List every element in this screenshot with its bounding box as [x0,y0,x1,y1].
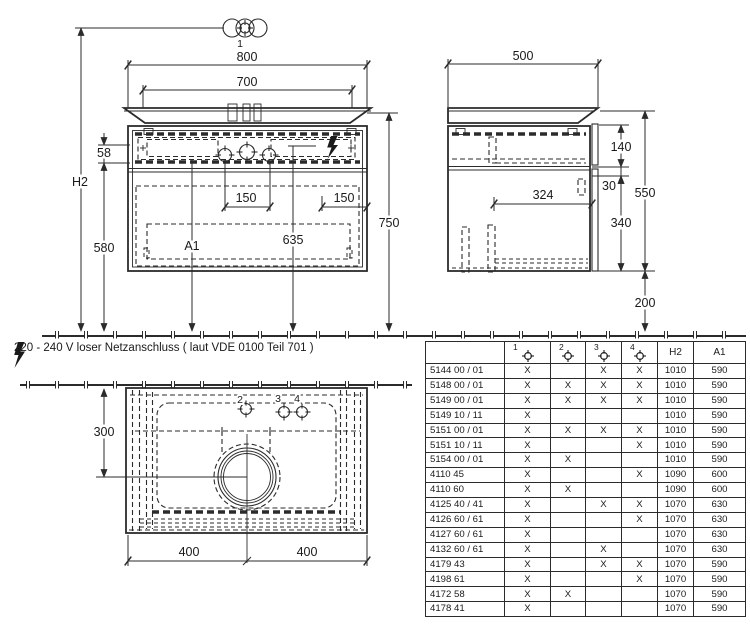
dim-150-right-label: 150 [334,191,355,205]
h2-cell: 1070 [658,498,694,513]
table-header-row: 1 2 [426,342,746,364]
hole3-cell [586,438,622,453]
drill-hole-icon [597,349,611,363]
dim-635: 635 [283,146,304,331]
hole2-cell [551,572,586,587]
front-view: 1 800 700 [72,19,399,331]
hole4-cell [622,542,658,557]
hole1-cell: X [505,587,551,602]
hole3-cell [586,512,622,527]
hole1-cell: X [505,364,551,379]
dim-150-left: 150 [225,163,270,211]
a1-cell: 630 [694,512,746,527]
a1-cell: 590 [694,453,746,468]
hole4-column-header: 4 [622,342,658,364]
hole4-cell: X [622,438,658,453]
a1-cell: 600 [694,483,746,498]
hole4-cell: X [622,378,658,393]
hole1-cell: X [505,512,551,527]
table-row: 5151 10 / 11XX1010590 [426,438,746,453]
article-column-header [426,342,505,364]
table-row: 4179 43XXX1070590 [426,557,746,572]
hole1-cell: X [505,378,551,393]
dim-500: 500 [448,49,598,107]
article-cell: 5149 00 / 01 [426,393,505,408]
article-cell: 4125 40 / 41 [426,498,505,513]
hole4-cell [622,453,658,468]
technical-drawing-page: 1 800 700 [0,0,750,637]
hole4-cell [622,587,658,602]
dim-400-right-label: 400 [297,545,318,559]
dim-324: 324 [494,188,592,211]
a1-cell: 590 [694,572,746,587]
h2-cell: 1070 [658,557,694,572]
hole4-cell: X [622,572,658,587]
hole1-cell: X [505,572,551,587]
dim-300: 300 [94,389,115,477]
dim-300-label: 300 [94,425,115,439]
hole4-cell: X [622,468,658,483]
a1-cell: 600 [694,468,746,483]
article-cell: 5151 00 / 01 [426,423,505,438]
plan-view: 2 3 4 300 400 400 [94,388,367,566]
dim-324-label: 324 [533,188,554,202]
a1-cell: 630 [694,542,746,557]
spec-table: 1 2 [425,341,746,617]
cabinet-side [448,124,598,272]
table-row: 4132 60 / 61XX1070630 [426,542,746,557]
hole4-cell [622,602,658,617]
article-cell: 4198 61 [426,572,505,587]
hole3-cell [586,602,622,617]
h2-cell: 1090 [658,483,694,498]
hole2-cell [551,542,586,557]
hole2-cell: X [551,423,586,438]
drill-hole-icon [561,349,575,363]
hole1-cell: X [505,542,551,557]
hole2-cell [551,557,586,572]
h2-cell: 1010 [658,364,694,379]
washbasin-side [448,108,598,123]
hole4-cell [622,408,658,423]
hole1-cell: X [505,423,551,438]
drill-hole-icon [633,349,647,363]
dim-200-label: 200 [635,296,656,310]
hole2-cell [551,364,586,379]
hole1-cell: X [505,453,551,468]
dim-750-label: 750 [379,216,400,230]
dim-340-label: 340 [611,216,632,230]
power-supply-note: 220 - 240 V loser Netzanschluss ( laut V… [14,342,314,354]
h2-cell: 1010 [658,393,694,408]
hole1-column-header: 1 [505,342,551,364]
a1-column-header: A1 [694,342,746,364]
table-row: 4110 60XX1090600 [426,483,746,498]
hole1-header-number: 1 [513,342,518,352]
hole2-cell: X [551,378,586,393]
dim-58: 58 [97,133,130,163]
hole4-cell [622,527,658,542]
tap-hole-symbol [75,19,267,37]
hole3-cell: X [586,423,622,438]
hole1-cell: X [505,393,551,408]
h2-cell: 1070 [658,527,694,542]
table-row: 5154 00 / 01XX1010590 [426,453,746,468]
dim-H2: H2 [72,28,88,331]
h2-cell: 1070 [658,542,694,557]
h2-cell: 1070 [658,572,694,587]
dim-A1-label: A1 [184,239,199,253]
table-row: 4110 45XX1090600 [426,468,746,483]
hole1-cell: X [505,498,551,513]
table-row: 4126 60 / 61XX1070630 [426,512,746,527]
hole3-cell: X [586,364,622,379]
hole4-cell: X [622,498,658,513]
a1-cell: 590 [694,408,746,423]
hole2-cell [551,498,586,513]
hole4-cell: X [622,557,658,572]
hole2-cell [551,512,586,527]
drill-holes-plan: 2 3 4 [237,393,310,421]
h2-cell: 1070 [658,587,694,602]
hole2-cell: X [551,587,586,602]
h2-cell: 1070 [658,602,694,617]
dim-580: 580 [94,163,115,331]
hole1-label: 1 [237,38,243,50]
a1-cell: 590 [694,393,746,408]
dim-150-left-label: 150 [236,191,257,205]
dim-400: 400 400 [128,535,367,566]
table-row: 4125 40 / 41XXX1070630 [426,498,746,513]
table-row: 5144 00 / 01XXX1010590 [426,364,746,379]
a1-cell: 590 [694,557,746,572]
hole2-cell: X [551,393,586,408]
hole1-cell: X [505,468,551,483]
spec-table-container: 1 2 [425,341,745,617]
article-cell: 4126 60 / 61 [426,512,505,527]
table-row: 5149 00 / 01XXXX1010590 [426,393,746,408]
hole4-crosshair [294,404,311,421]
a1-cell: 590 [694,602,746,617]
article-cell: 5154 00 / 01 [426,453,505,468]
hole4-cell: X [622,393,658,408]
hole3-column-header: 3 [586,342,622,364]
article-cell: 5149 10 / 11 [426,408,505,423]
hole4-cell: X [622,364,658,379]
a1-cell: 630 [694,527,746,542]
dim-700: 700 [143,75,352,108]
article-cell: 4132 60 / 61 [426,542,505,557]
a1-cell: 590 [694,438,746,453]
hole4-label: 4 [294,393,300,405]
hole4-cell: X [622,423,658,438]
h2-column-header: H2 [658,342,694,364]
h2-cell: 1010 [658,378,694,393]
hole3-cell [586,527,622,542]
hole3-crosshair [276,404,293,421]
hole1-cell: X [505,483,551,498]
h2-cell: 1010 [658,423,694,438]
hole2-cell [551,602,586,617]
article-cell: 5148 00 / 01 [426,378,505,393]
article-cell: 4178 41 [426,602,505,617]
hole3-cell [586,453,622,468]
hole3-cell: X [586,393,622,408]
lightning-bolt-icon [14,342,26,369]
hole2-column-header: 2 [551,342,586,364]
article-cell: 4110 45 [426,468,505,483]
table-row: 4178 41X1070590 [426,602,746,617]
dim-140-label: 140 [611,140,632,154]
hole3-cell: X [586,557,622,572]
dim-58-label: 58 [97,146,111,160]
h2-cell: 1010 [658,438,694,453]
dim-635-label: 635 [283,233,304,247]
dim-700-label: 700 [237,75,258,89]
dim-150-right: 150 [322,191,367,211]
table-row: 5151 00 / 01XXXX1010590 [426,423,746,438]
dim-800-label: 800 [237,50,258,64]
dim-500-label: 500 [513,49,534,63]
power-supply-note-text: 220 - 240 V loser Netzanschluss ( laut V… [14,342,314,354]
drain-hole [96,434,280,563]
drill-holes-front [216,136,339,165]
a1-cell: 630 [694,498,746,513]
article-cell: 4110 60 [426,483,505,498]
h2-cell: 1010 [658,408,694,423]
dim-H2-label: H2 [72,175,88,189]
table-row: 5148 00 / 01XXXX1010590 [426,378,746,393]
hole4-cell: X [622,512,658,527]
side-view: 500 [448,49,655,331]
dim-750: 750 [367,113,399,331]
floor-tile-strip [42,331,746,339]
drill-hole-icon [521,349,535,363]
article-cell: 4172 58 [426,587,505,602]
dim-400-left-label: 400 [179,545,200,559]
hole2-cell: X [551,483,586,498]
h2-cell: 1010 [658,453,694,468]
article-cell: 4127 60 / 61 [426,527,505,542]
hole3-cell [586,587,622,602]
h2-cell: 1090 [658,468,694,483]
dim-200: 200 [635,271,656,331]
table-row: 5149 10 / 11X1010590 [426,408,746,423]
hole1-cell: X [505,527,551,542]
hole1-cell: X [505,408,551,423]
table-row: 4198 61XX1070590 [426,572,746,587]
hole4-cell [622,483,658,498]
hole2-cell: X [551,453,586,468]
hole2-cell [551,527,586,542]
hole3-cell [586,408,622,423]
dim-580-label: 580 [94,241,115,255]
a1-cell: 590 [694,378,746,393]
hole1-cell: X [505,602,551,617]
dim-550-label: 550 [635,186,656,200]
hole3-cell: X [586,498,622,513]
hole2-cell [551,408,586,423]
a1-cell: 590 [694,423,746,438]
hole3-cell [586,483,622,498]
hole1-cell: X [505,438,551,453]
hole3-cell [586,468,622,483]
article-cell: 5151 10 / 11 [426,438,505,453]
hole3-cell: X [586,378,622,393]
hole2-cell [551,468,586,483]
article-cell: 5144 00 / 01 [426,364,505,379]
h2-cell: 1070 [658,512,694,527]
hole1-cell: X [505,557,551,572]
hole3-cell [586,572,622,587]
a1-cell: 590 [694,364,746,379]
table-row: 4172 58XX1070590 [426,587,746,602]
spec-table-body: 5144 00 / 01XXX10105905148 00 / 01XXXX10… [426,364,746,617]
washbasin-front [124,104,371,123]
hole3-label: 3 [275,393,281,405]
article-cell: 4179 43 [426,557,505,572]
dim-30-label: 30 [602,179,616,193]
hole2-label: 2 [237,394,243,406]
hole2-cell [551,438,586,453]
hole3-cell: X [586,542,622,557]
table-row: 4127 60 / 61X1070630 [426,527,746,542]
a1-cell: 590 [694,587,746,602]
